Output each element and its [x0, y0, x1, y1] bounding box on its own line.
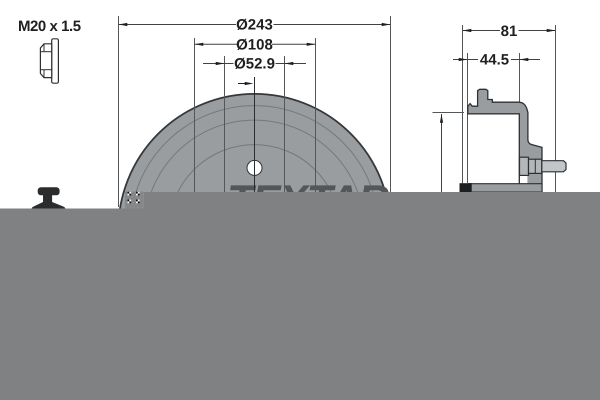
svg-text:M20 x 1.5: M20 x 1.5	[18, 18, 81, 35]
svg-text:81: 81	[501, 23, 518, 40]
svg-text:Ø243: Ø243	[236, 17, 273, 34]
svg-text:44.5: 44.5	[480, 52, 509, 69]
svg-text:Ø52.9: Ø52.9	[234, 56, 275, 73]
svg-text:Ø108: Ø108	[236, 36, 273, 53]
